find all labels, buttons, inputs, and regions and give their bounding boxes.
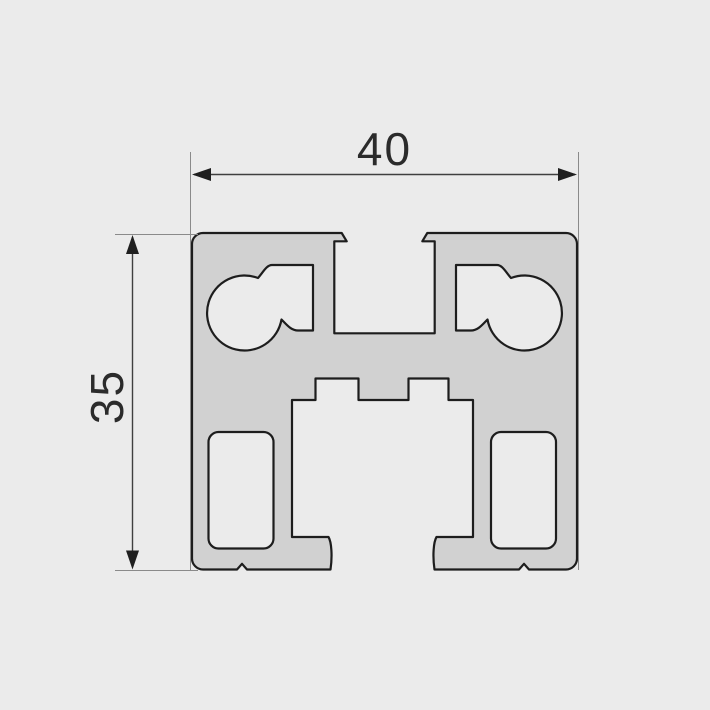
height-dimension-label: 35 xyxy=(81,369,133,424)
technical-drawing-canvas: 40 35 xyxy=(0,0,710,710)
width-dimension-label: 40 xyxy=(357,123,412,175)
